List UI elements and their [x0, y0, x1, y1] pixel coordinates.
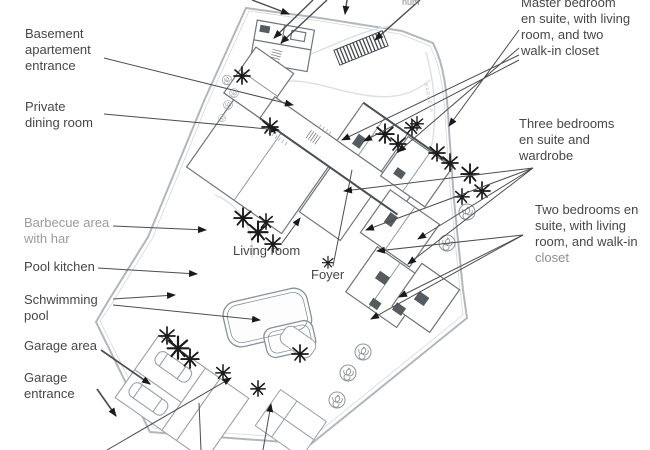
palm-tree-icons [159, 67, 490, 396]
label-pool-kitchen: Pool kitchen [24, 259, 95, 275]
label-private-dining-room: Private dining room [25, 99, 93, 131]
label-swimming-pool: Schwimming pool [24, 292, 98, 324]
label-barbecue-area: Barbecue area with har [24, 215, 109, 247]
label-garage-area: Garage area [24, 338, 97, 354]
label-garage-entrance: Garage entrance [24, 370, 75, 402]
label-two-bedrooms-closet: closet [535, 250, 569, 266]
label-master-bedroom: Master bedroom en suite, with living roo… [521, 0, 630, 59]
floor-plan-figure: Basement apartement entrance Private din… [0, 0, 650, 450]
label-three-bedrooms: Three bedrooms en suite and wardrobe [519, 116, 614, 164]
label-living-room: Living room [233, 243, 300, 259]
label-basement-apartment-entrance: Basement apartement entrance [25, 26, 91, 74]
label-two-bedrooms: Two bedrooms en suite, with living room,… [535, 202, 638, 250]
label-truncated-top-fragment: num [402, 0, 420, 10]
label-foyer: Foyer [311, 267, 344, 283]
